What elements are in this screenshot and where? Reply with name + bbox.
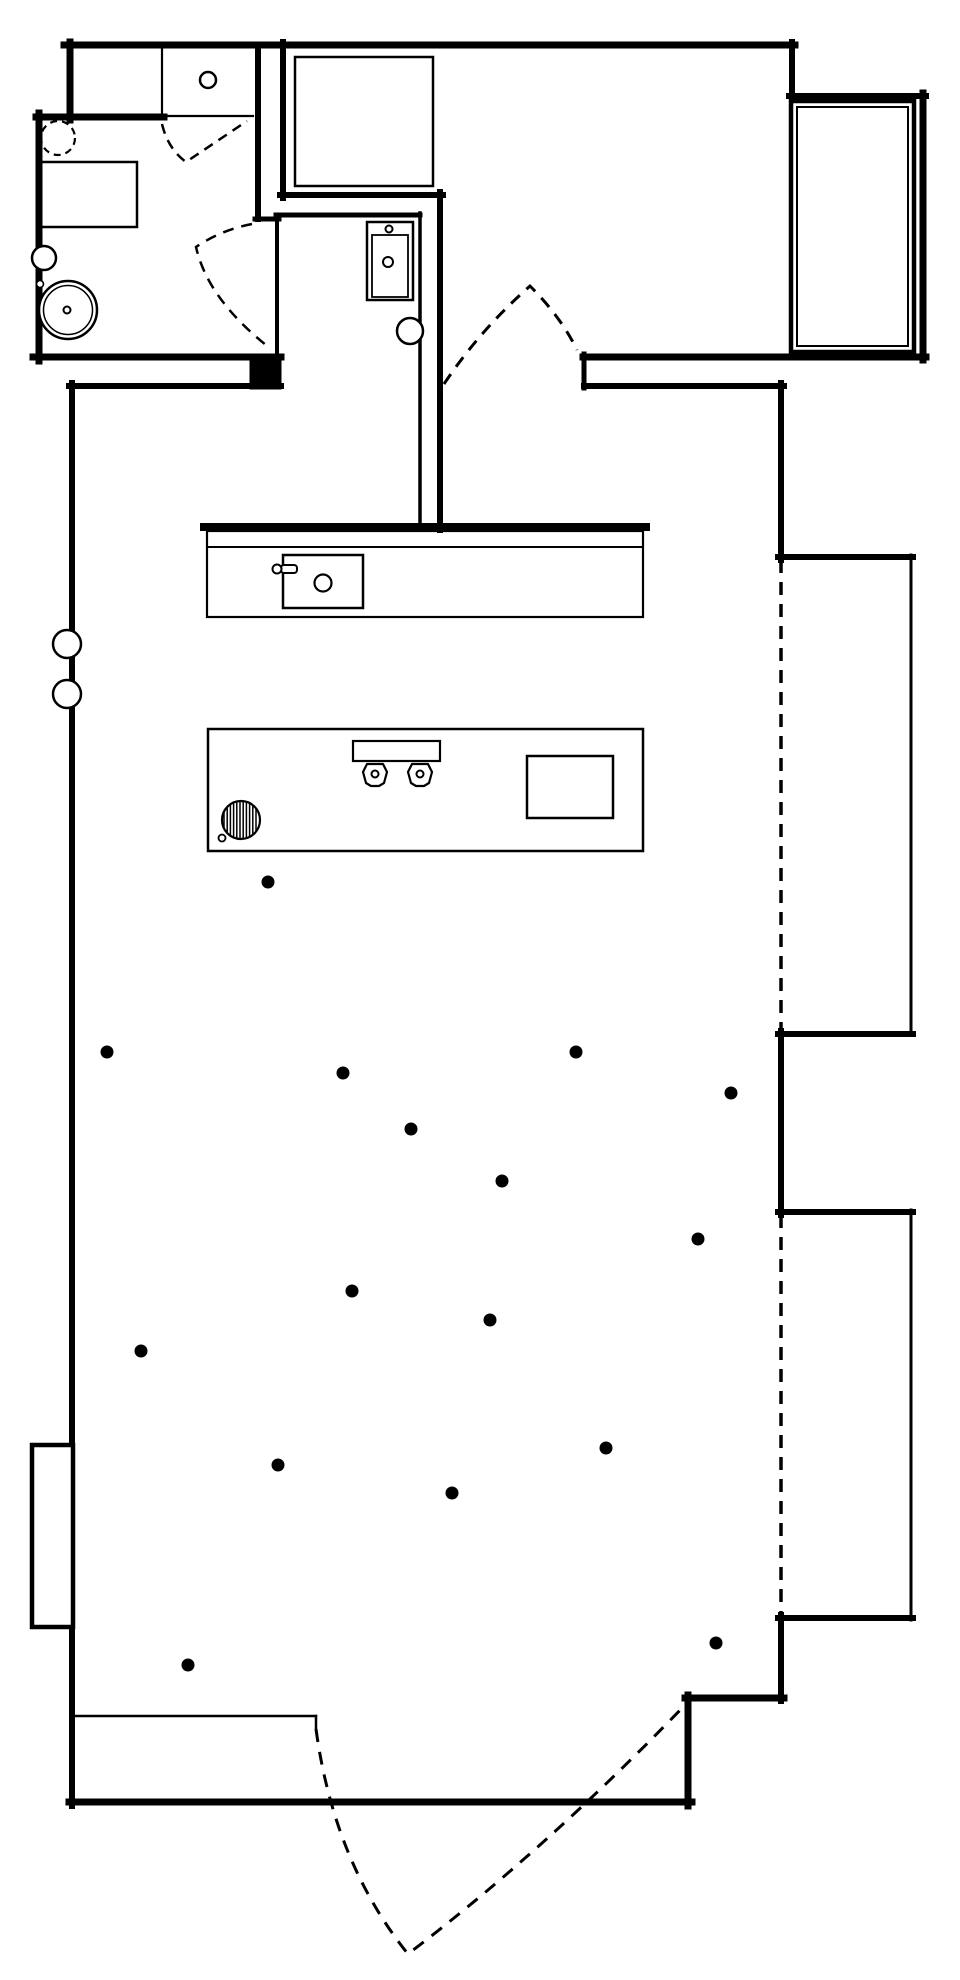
floor-dot-14 bbox=[446, 1487, 459, 1500]
kitchen-counter bbox=[207, 531, 643, 617]
island-tray bbox=[353, 741, 440, 761]
burner-2 bbox=[408, 764, 432, 786]
left-wall-circle-2 bbox=[53, 680, 81, 708]
wall-basin-outer bbox=[367, 222, 413, 300]
floor-dot-16 bbox=[710, 1637, 723, 1650]
left-wall-circle-1 bbox=[53, 630, 81, 658]
wall-basin-drain bbox=[383, 257, 393, 267]
wardrobe bbox=[295, 57, 433, 186]
floor-dot-5 bbox=[725, 1087, 738, 1100]
toilet-dashed-circle bbox=[41, 121, 75, 155]
floor-dot-10 bbox=[484, 1314, 497, 1327]
washing-machine-outer bbox=[39, 281, 97, 339]
floor-dot-12 bbox=[600, 1442, 613, 1455]
kitchen-sink bbox=[283, 555, 363, 608]
floor-dot-7 bbox=[496, 1175, 509, 1188]
kitchen-faucet-knob bbox=[273, 565, 282, 574]
kitchen-sink-drain bbox=[315, 575, 332, 592]
upper-closet-door-dashed bbox=[162, 121, 247, 162]
bathroom-door-dashed bbox=[196, 224, 271, 349]
bed-inner bbox=[797, 107, 908, 346]
entry-door-dashed bbox=[316, 1704, 686, 1954]
wall-basin-tap bbox=[386, 226, 393, 233]
bedroom-door-dashed bbox=[444, 286, 577, 384]
kitchen-faucet-handle bbox=[281, 565, 297, 573]
floor-dot-9 bbox=[346, 1285, 359, 1298]
floor-plan-canvas bbox=[0, 0, 960, 1980]
island-hob-ignitor bbox=[219, 835, 226, 842]
floor-dot-15 bbox=[182, 1659, 195, 1672]
wall-circle-small bbox=[32, 246, 56, 270]
upper-left-room-knob bbox=[200, 72, 216, 88]
floor-dot-6 bbox=[405, 1123, 418, 1136]
vanity-counter bbox=[38, 162, 137, 227]
kitchen-island bbox=[208, 729, 643, 851]
left-window-bay bbox=[32, 1445, 73, 1627]
floor-dot-11 bbox=[135, 1345, 148, 1358]
hall-door-knob bbox=[397, 318, 423, 344]
floor-plan bbox=[0, 0, 960, 1980]
floor-dot-13 bbox=[272, 1459, 285, 1472]
floor-dot-8 bbox=[692, 1233, 705, 1246]
island-board bbox=[527, 756, 613, 818]
floor-dot-4 bbox=[570, 1046, 583, 1059]
burner-1 bbox=[363, 764, 387, 786]
wall-circle-tiny bbox=[37, 281, 44, 288]
bed-outer bbox=[791, 101, 914, 352]
floor-dot-2 bbox=[101, 1046, 114, 1059]
floor-dot-3 bbox=[337, 1067, 350, 1080]
floor-dot-1 bbox=[262, 876, 275, 889]
